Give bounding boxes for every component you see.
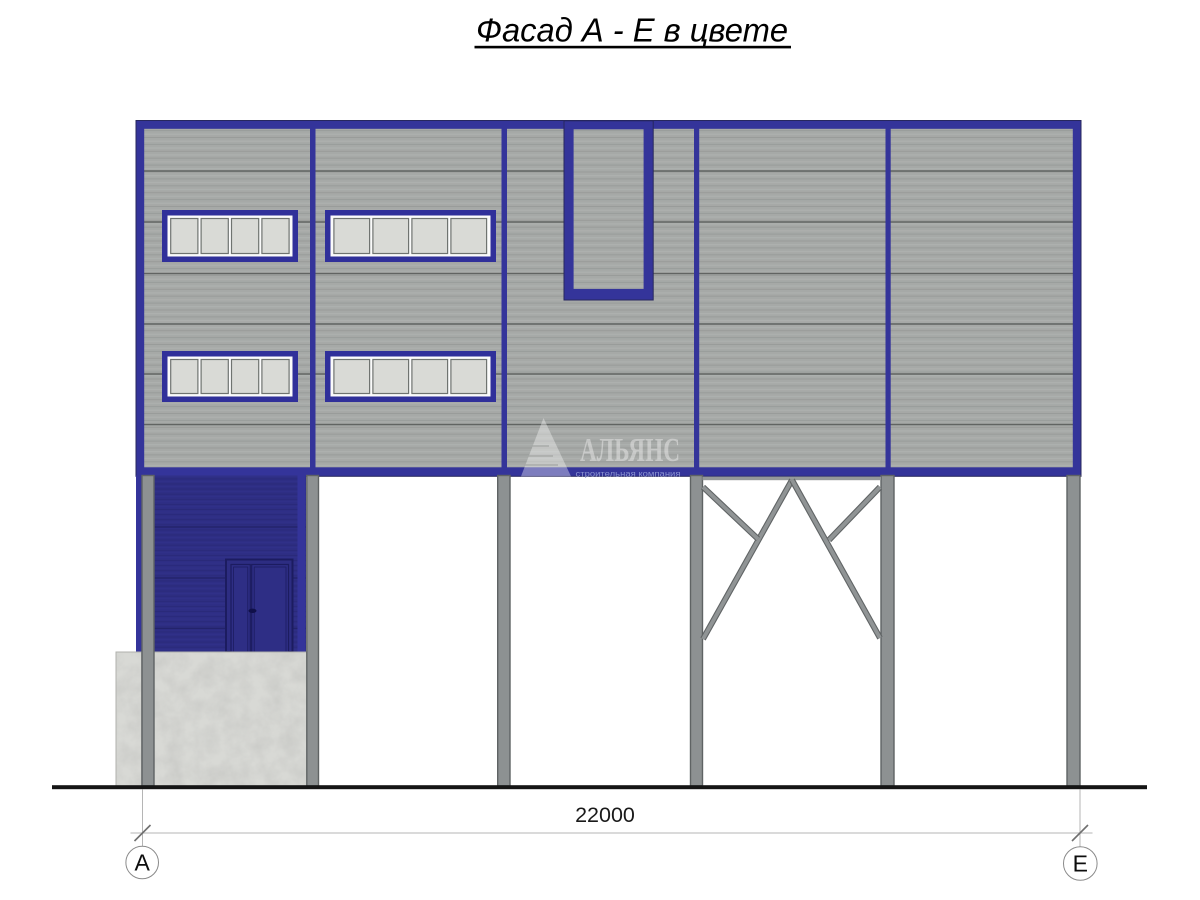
svg-text:22000: 22000 [575, 803, 635, 827]
svg-text:А: А [135, 850, 151, 876]
svg-text:АЛЬЯНС: АЛЬЯНС [580, 432, 680, 469]
svg-text:Е: Е [1073, 851, 1088, 877]
svg-text:строительная компания: строительная компания [576, 469, 681, 478]
svg-text:Фасад А - Е в цвете: Фасад А - Е в цвете [476, 12, 788, 49]
